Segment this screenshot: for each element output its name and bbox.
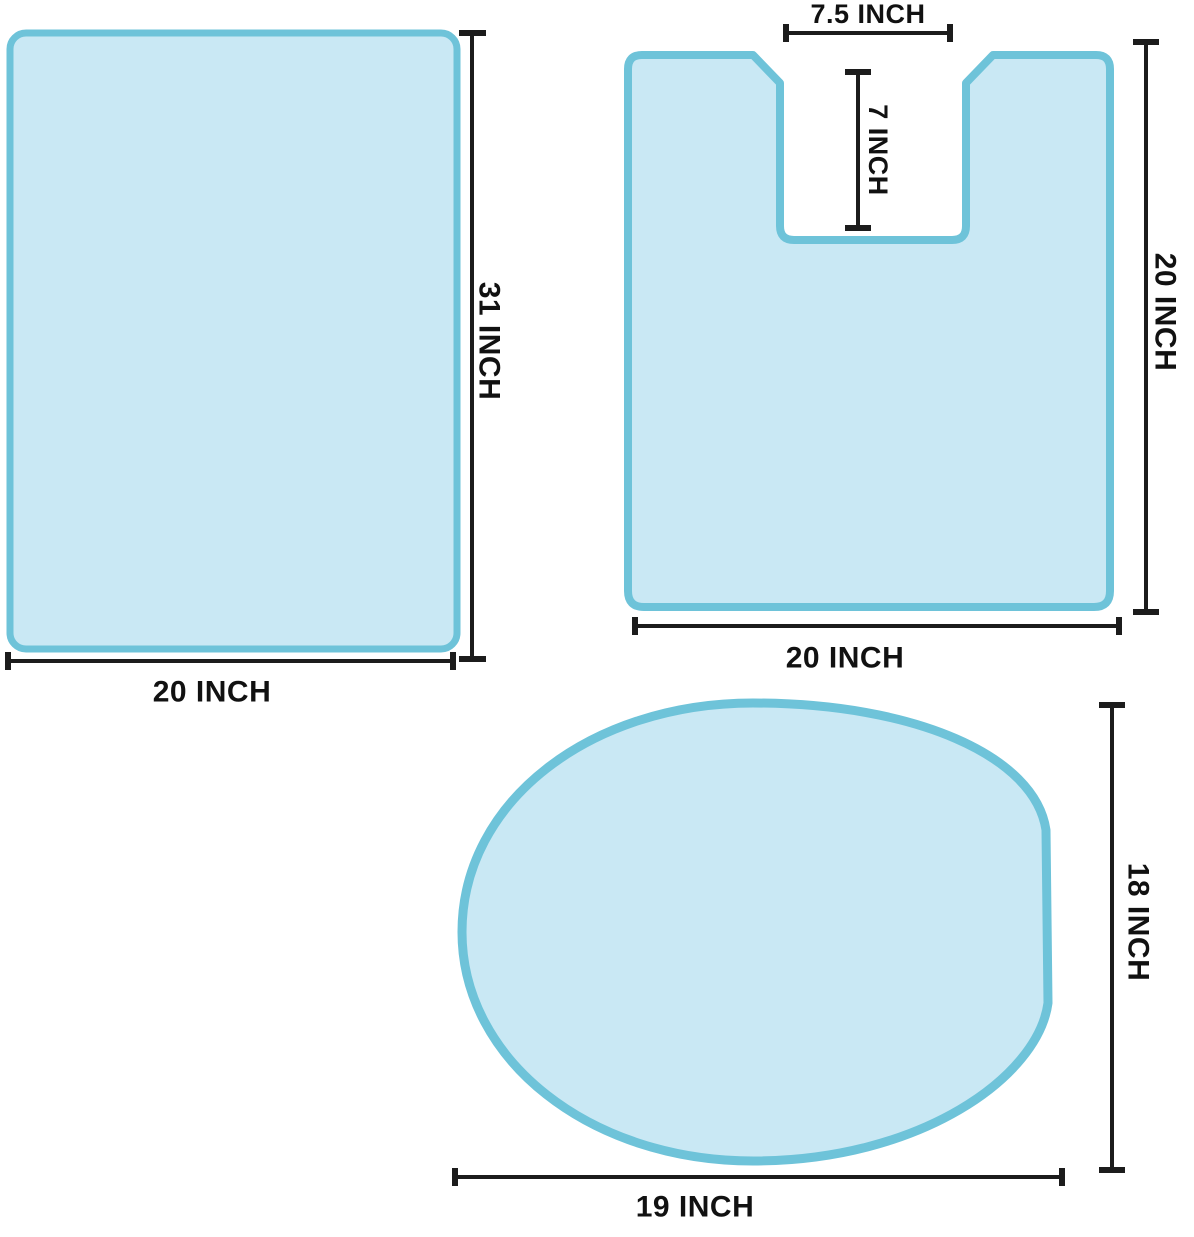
diagram-canvas: 31 INCH 20 INCH 7.5 INCH 7 INCH (0, 0, 1194, 1237)
contour-rug-height-label: 20 INCH (1149, 253, 1182, 372)
lid-cover-shape (462, 703, 1048, 1161)
lid-cover-height-label: 18 INCH (1122, 863, 1155, 982)
lid-cover-width-dimension-line (455, 1168, 1062, 1186)
bath-mat-shape (10, 33, 457, 649)
contour-rug-width-label: 20 INCH (786, 642, 905, 675)
bath-mat-width-label: 20 INCH (153, 676, 272, 709)
lid-cover-width-label: 19 INCH (636, 1191, 755, 1224)
contour-rug-cutout-width-label: 7.5 INCH (810, 0, 925, 29)
lid-cover-height-dimension-line (1099, 705, 1125, 1170)
bath-mat-width-dimension-line (8, 652, 453, 670)
contour-rug-width-dimension-line (635, 617, 1119, 635)
contour-rug-cutout-depth-label: 7 INCH (863, 104, 893, 196)
rug-set-dimension-diagram: 31 INCH 20 INCH 7.5 INCH 7 INCH (0, 0, 1194, 1237)
bath-mat-height-label: 31 INCH (473, 282, 506, 401)
